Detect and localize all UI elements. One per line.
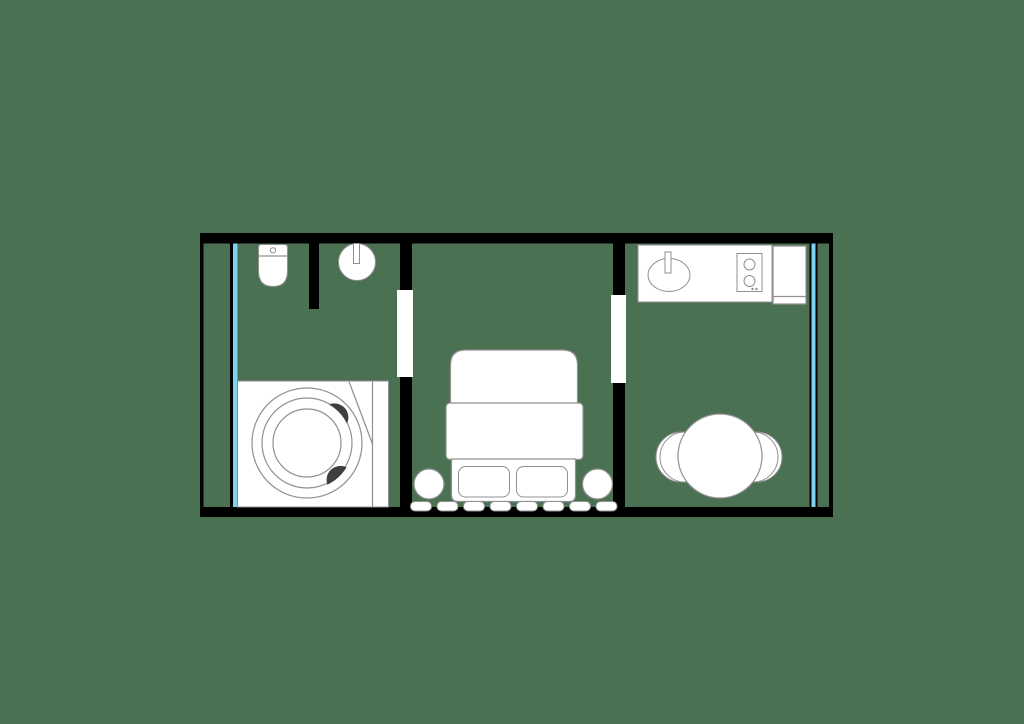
- room-bedroom: [411, 350, 618, 511]
- kitchen-counter-icon: [638, 245, 772, 302]
- right-wall-line: [829, 243, 833, 507]
- privacy-partition: [309, 243, 319, 309]
- interior-wall-bedroom-kitchen: [611, 243, 626, 507]
- window-left-frame-icon: [230, 244, 233, 508]
- radiator-fin: [570, 502, 591, 512]
- nightstand-right-icon: [583, 469, 613, 499]
- bed-duvet: [451, 350, 578, 405]
- radiator-fin: [411, 502, 432, 512]
- dining-set-icon: [656, 414, 782, 498]
- kitchen-sink-faucet: [665, 252, 671, 273]
- floor-plan-canvas: [0, 0, 1024, 724]
- toilet-flush-button: [270, 248, 275, 253]
- floor-plan-page: { "diagram": { "type": "floor-plan", "ti…: [0, 0, 1024, 724]
- window-left-glass-icon: [233, 244, 238, 508]
- wall-segment: [613, 243, 625, 295]
- radiator-fin: [517, 502, 538, 512]
- radiator-fin: [596, 502, 617, 512]
- window-right-glass-icon: [812, 244, 816, 508]
- double-bed-icon: [446, 350, 583, 502]
- burner-rear: [744, 276, 755, 287]
- room-bathroom: [238, 243, 389, 507]
- wall-segment: [400, 377, 412, 507]
- wall-segment: [400, 243, 412, 290]
- window-right-frame-outer-icon: [810, 244, 812, 508]
- toilet-icon: [259, 245, 288, 287]
- radiator-fin: [437, 502, 458, 512]
- cooktop-icon: [737, 254, 762, 292]
- room-kitchen-dining: [638, 245, 806, 498]
- radiator-fin: [490, 502, 511, 512]
- bed-blanket-band: [446, 403, 583, 460]
- refrigerator-icon: [773, 246, 806, 304]
- dining-table-icon: [678, 414, 762, 498]
- pillow-right: [517, 467, 568, 498]
- nightstand-left-icon: [414, 469, 444, 499]
- interior-wall-bathroom-bedroom: [397, 243, 413, 507]
- radiator-fin: [464, 502, 485, 512]
- cooktop-knob-dot: [751, 288, 753, 290]
- wall-segment: [613, 383, 625, 507]
- window-right-frame-inner-icon: [816, 244, 818, 508]
- radiator-fin: [543, 502, 564, 512]
- window-left: [230, 244, 238, 508]
- left-wall-line: [200, 243, 204, 507]
- refrigerator-body: [773, 246, 806, 304]
- burner-front: [744, 259, 755, 270]
- door-opening-bathroom-bedroom: [397, 290, 413, 377]
- bathtub-icon: [238, 381, 389, 507]
- door-opening-bedroom-kitchen: [611, 295, 626, 383]
- cooktop-knob-dot: [755, 288, 757, 290]
- washbasin-icon: [339, 244, 376, 281]
- pillow-left: [459, 467, 510, 498]
- window-right: [810, 244, 818, 508]
- washbasin-faucet: [354, 244, 360, 264]
- top-wall: [200, 233, 833, 244]
